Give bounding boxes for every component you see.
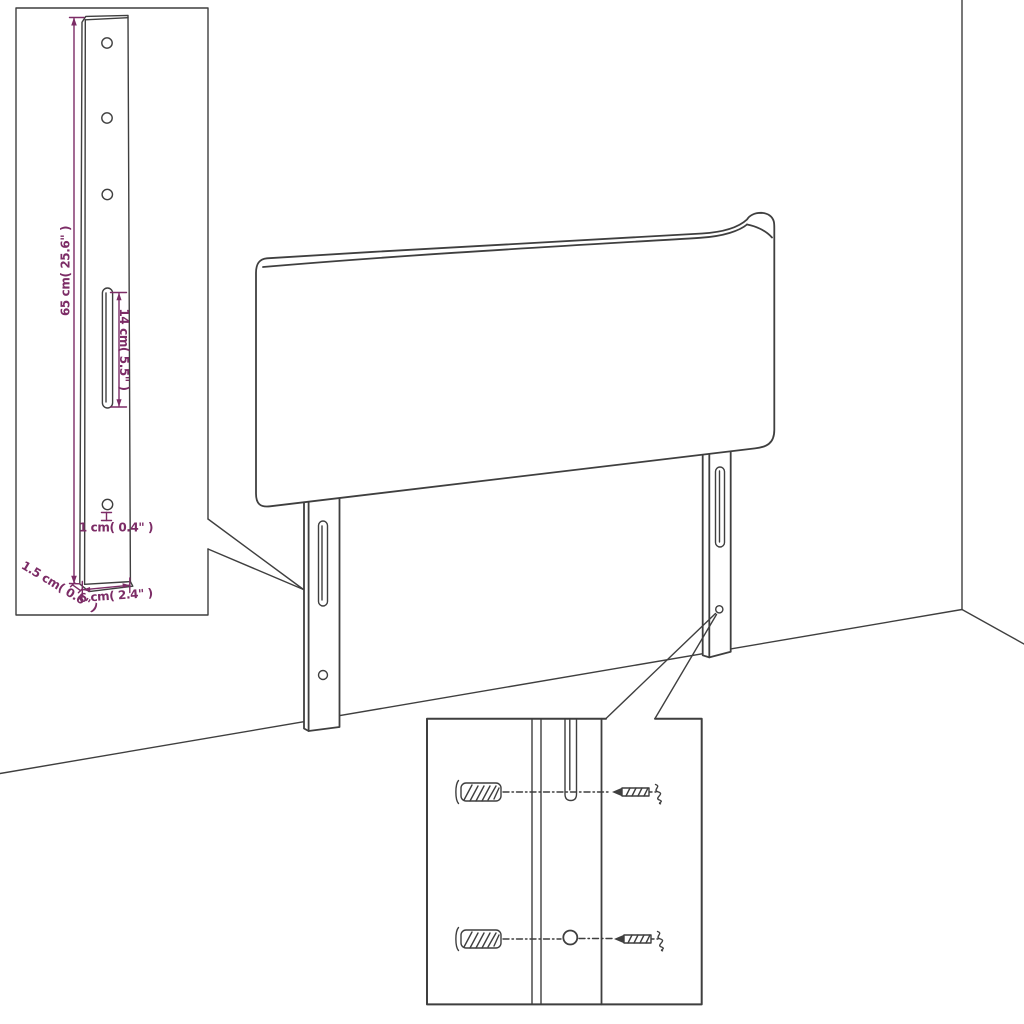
dim-hole-label: 1 cm( 0.4" ) [79, 521, 153, 535]
leg-detail-drawing [80, 15, 133, 591]
wall-plug-top-flange [456, 781, 459, 804]
screw-bottom-threads [628, 935, 650, 943]
diagram-canvas: 65 cm( 25.6" ) 14 cm( 5.5" ) 1 cm( 0.4" … [0, 0, 1024, 1024]
floor-line-left [0, 610, 962, 774]
strip-hole [563, 931, 577, 945]
screw-top [612, 785, 661, 804]
wall-plug-top [456, 781, 501, 804]
callout-line-left-upper [208, 519, 304, 590]
mounting-row-top [456, 781, 661, 804]
screw-bottom-tip [614, 935, 624, 943]
diagram-page: 65 cm( 25.6" ) 14 cm( 5.5" ) 1 cm( 0.4" … [0, 0, 1024, 1024]
dim-height-label: 65 cm( 25.6" ) [59, 226, 73, 316]
callout-line-right-lower [655, 615, 717, 719]
screw-top-threads [626, 788, 648, 796]
dim-slot-label: 14 cm( 5.5" ) [117, 308, 131, 390]
mounting-row-bottom [456, 928, 663, 951]
callout-lines-left [208, 519, 304, 590]
strip-slot [565, 719, 577, 801]
screw-top-tip [612, 788, 622, 796]
headboard-panel-outline [256, 213, 774, 507]
wall-plug-top-hatch [464, 785, 499, 801]
floor-line-right [962, 610, 1024, 645]
screw-bottom [614, 932, 663, 951]
callout-line-right-upper [606, 614, 716, 719]
mounting-leg-strip [532, 719, 602, 1005]
screw-bottom-head [658, 932, 664, 951]
headboard-panel [256, 213, 774, 507]
detail-leg-left-edge-line [85, 20, 86, 585]
callout-lines-right [606, 614, 717, 719]
leg-detail-inset: 65 cm( 25.6" ) 14 cm( 5.5" ) 1 cm( 0.4" … [16, 8, 208, 615]
wall-plug-bottom-flange [456, 928, 459, 951]
screw-top-head [656, 785, 662, 804]
headboard-leg-right [703, 427, 731, 657]
leg-right-body [703, 427, 731, 657]
wall-plug-bottom-hatch [464, 932, 499, 948]
dim-height-arrow-top [71, 18, 77, 26]
headboard-leg-left [304, 466, 340, 731]
wall-plug-bottom [456, 928, 501, 951]
mounting-detail-inset [427, 719, 702, 1005]
